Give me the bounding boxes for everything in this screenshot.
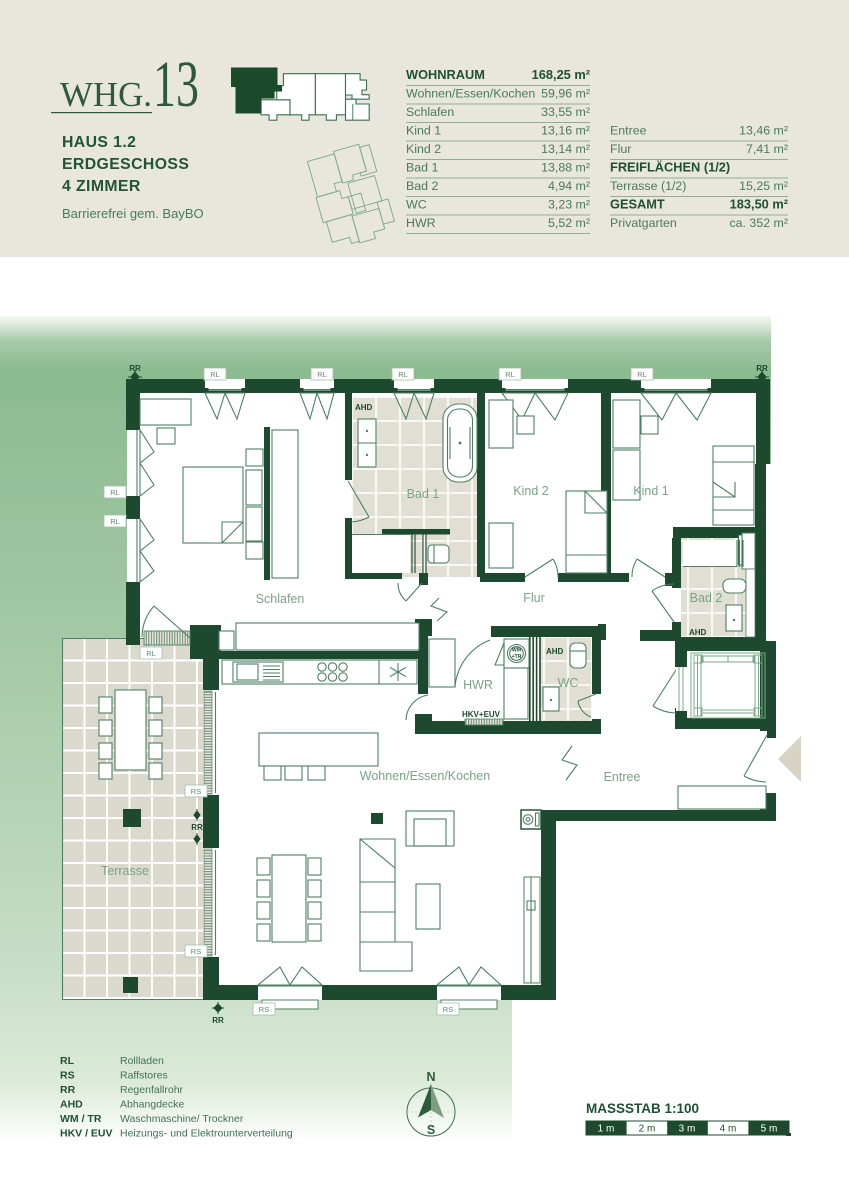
svg-text:Schlafen: Schlafen — [256, 592, 305, 606]
svg-text:13,16 m²: 13,16 m² — [541, 124, 590, 138]
svg-text:168,25 m²: 168,25 m² — [532, 67, 590, 82]
svg-text:RS: RS — [191, 947, 201, 956]
svg-text:3 m: 3 m — [679, 1124, 696, 1135]
svg-text:Kind 1: Kind 1 — [406, 124, 441, 138]
svg-text:13,88 m²: 13,88 m² — [541, 161, 590, 175]
svg-text:RR: RR — [191, 823, 203, 832]
svg-text:HWR: HWR — [463, 678, 493, 692]
svg-text:RL: RL — [146, 649, 156, 658]
svg-text:7,41 m²: 7,41 m² — [746, 142, 788, 156]
svg-text:RS: RS — [259, 1005, 269, 1014]
svg-text:Kind 2: Kind 2 — [513, 484, 548, 498]
svg-text:WM / TR: WM / TR — [60, 1113, 102, 1125]
svg-text:RL: RL — [110, 517, 120, 526]
svg-text:Barrierefrei gem. BayBO: Barrierefrei gem. BayBO — [62, 206, 204, 221]
svg-text:Flur: Flur — [610, 142, 631, 156]
svg-text:59,96 m²: 59,96 m² — [541, 87, 590, 101]
svg-text:4 ZIMMER: 4 ZIMMER — [62, 178, 141, 195]
svg-text:GESAMT: GESAMT — [610, 197, 665, 212]
svg-text:RS: RS — [443, 1005, 453, 1014]
svg-text:Schlafen: Schlafen — [406, 105, 454, 119]
svg-text:AHD: AHD — [689, 628, 707, 637]
svg-text:WC: WC — [406, 198, 427, 212]
svg-text:Flur: Flur — [523, 591, 545, 605]
svg-text:S: S — [427, 1123, 435, 1137]
svg-text:13,46 m²: 13,46 m² — [739, 124, 788, 138]
svg-text:N: N — [426, 1070, 435, 1084]
svg-text:Terrasse: Terrasse — [101, 864, 149, 878]
svg-text:RL: RL — [637, 370, 647, 379]
svg-text:Wohnen/Essen/Kochen: Wohnen/Essen/Kochen — [360, 769, 490, 783]
svg-text:WHG.: WHG. — [60, 75, 152, 114]
svg-text:4,94 m²: 4,94 m² — [548, 179, 590, 193]
svg-text:Entree: Entree — [610, 124, 647, 138]
svg-text:1 m: 1 m — [598, 1124, 615, 1135]
svg-text:Kind 1: Kind 1 — [633, 484, 668, 498]
svg-text:HAUS 1.2: HAUS 1.2 — [62, 134, 136, 151]
svg-text:RL: RL — [398, 370, 408, 379]
svg-text:Kind 2: Kind 2 — [406, 142, 441, 156]
svg-text:Privatgarten: Privatgarten — [610, 216, 677, 230]
svg-text:HKV / EUV: HKV / EUV — [60, 1128, 113, 1140]
svg-text:Bad 1: Bad 1 — [407, 487, 440, 501]
svg-text:WOHNRAUM: WOHNRAUM — [406, 67, 485, 82]
svg-text:RS: RS — [191, 787, 201, 796]
svg-text:+TR: +TR — [512, 654, 522, 660]
svg-text:5 m: 5 m — [761, 1124, 778, 1135]
svg-text:3,23 m²: 3,23 m² — [548, 198, 590, 212]
svg-text:Waschmaschine/ Trockner: Waschmaschine/ Trockner — [120, 1113, 244, 1125]
svg-text:WC: WC — [558, 676, 579, 690]
svg-text:5,52 m²: 5,52 m² — [548, 216, 590, 230]
svg-text:Bad 1: Bad 1 — [406, 161, 438, 175]
svg-text:WM: WM — [512, 648, 521, 654]
svg-text:Abhangdecke: Abhangdecke — [120, 1099, 184, 1111]
svg-text:ca. 352 m²: ca. 352 m² — [729, 216, 788, 230]
svg-text:AHD: AHD — [60, 1099, 83, 1111]
svg-text:Terrasse (1/2): Terrasse (1/2) — [610, 179, 686, 193]
svg-text:Entree: Entree — [604, 770, 641, 784]
svg-text:183,50 m²: 183,50 m² — [730, 197, 788, 212]
svg-text:RL: RL — [60, 1055, 75, 1067]
svg-text:RL: RL — [110, 488, 120, 497]
svg-text:15,25 m²: 15,25 m² — [739, 179, 788, 193]
svg-text:ERDGESCHOSS: ERDGESCHOSS — [62, 156, 189, 173]
svg-text:13: 13 — [153, 48, 199, 121]
svg-text:Bad 2: Bad 2 — [690, 591, 723, 605]
svg-text:4 m: 4 m — [720, 1124, 737, 1135]
svg-text:RL: RL — [210, 370, 220, 379]
svg-text:Wohnen/Essen/Kochen: Wohnen/Essen/Kochen — [406, 87, 535, 101]
svg-text:Raffstores: Raffstores — [120, 1070, 168, 1082]
svg-text:RR: RR — [212, 1016, 224, 1025]
svg-text:HKV+EUV: HKV+EUV — [462, 710, 501, 719]
svg-text:Regenfallrohr: Regenfallrohr — [120, 1084, 184, 1096]
svg-text:AHD: AHD — [546, 647, 564, 656]
svg-text:13,14 m²: 13,14 m² — [541, 142, 590, 156]
svg-text:RR: RR — [60, 1084, 76, 1096]
svg-text:RL: RL — [505, 370, 515, 379]
svg-text:Heizungs- und Elektrountervert: Heizungs- und Elektrounterverteilung — [120, 1128, 293, 1140]
svg-text:Bad 2: Bad 2 — [406, 179, 438, 193]
svg-text:33,55 m²: 33,55 m² — [541, 105, 590, 119]
svg-text:RS: RS — [60, 1070, 75, 1082]
svg-text:HWR: HWR — [406, 216, 436, 230]
svg-text:MASSSTAB 1:100: MASSSTAB 1:100 — [586, 1101, 699, 1116]
svg-text:FREIFLÄCHEN (1/2): FREIFLÄCHEN (1/2) — [610, 160, 730, 175]
svg-text:AHD: AHD — [355, 403, 373, 412]
svg-text:Rollladen: Rollladen — [120, 1055, 164, 1067]
svg-text:RL: RL — [317, 370, 327, 379]
svg-text:2 m: 2 m — [639, 1124, 656, 1135]
